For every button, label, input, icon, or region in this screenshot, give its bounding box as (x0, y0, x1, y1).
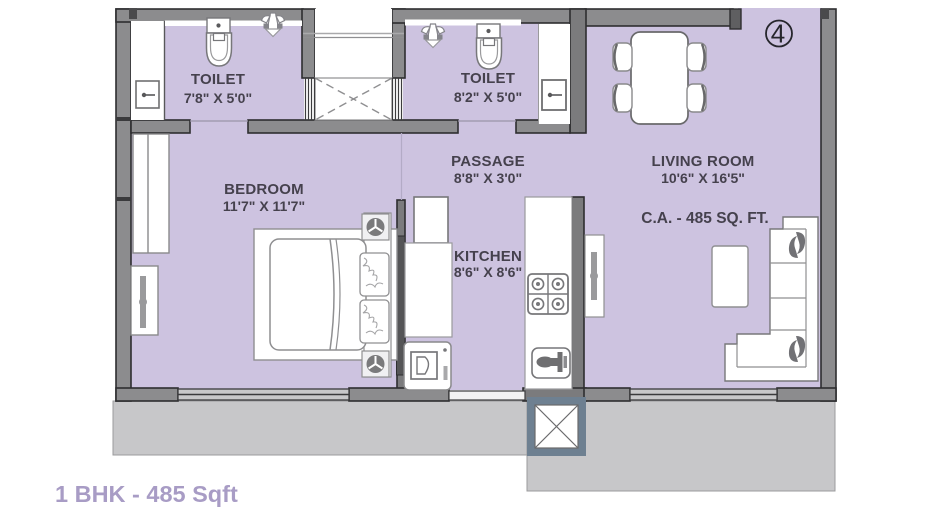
svg-text:8'8" X 3'0": 8'8" X 3'0" (454, 170, 522, 186)
svg-text:11'7" X 11'7": 11'7" X 11'7" (223, 198, 305, 214)
svg-text:TOILET: TOILET (191, 71, 245, 88)
svg-text:4: 4 (771, 19, 785, 49)
svg-text:1 BHK - 485 Sqft: 1 BHK - 485 Sqft (55, 481, 238, 507)
svg-text:8'2" X 5'0": 8'2" X 5'0" (454, 89, 522, 105)
svg-text:BEDROOM: BEDROOM (224, 181, 304, 198)
svg-text:TOILET: TOILET (461, 70, 515, 87)
svg-text:LIVING ROOM: LIVING ROOM (651, 153, 754, 170)
svg-text:7'8" X 5'0": 7'8" X 5'0" (184, 90, 252, 106)
svg-text:C.A. - 485 SQ. FT.: C.A. - 485 SQ. FT. (641, 210, 768, 227)
svg-text:10'6" X 16'5": 10'6" X 16'5" (661, 170, 745, 186)
svg-text:KITCHEN: KITCHEN (454, 248, 522, 265)
svg-text:PASSAGE: PASSAGE (451, 153, 525, 170)
svg-text:8'6" X 8'6": 8'6" X 8'6" (454, 264, 522, 280)
